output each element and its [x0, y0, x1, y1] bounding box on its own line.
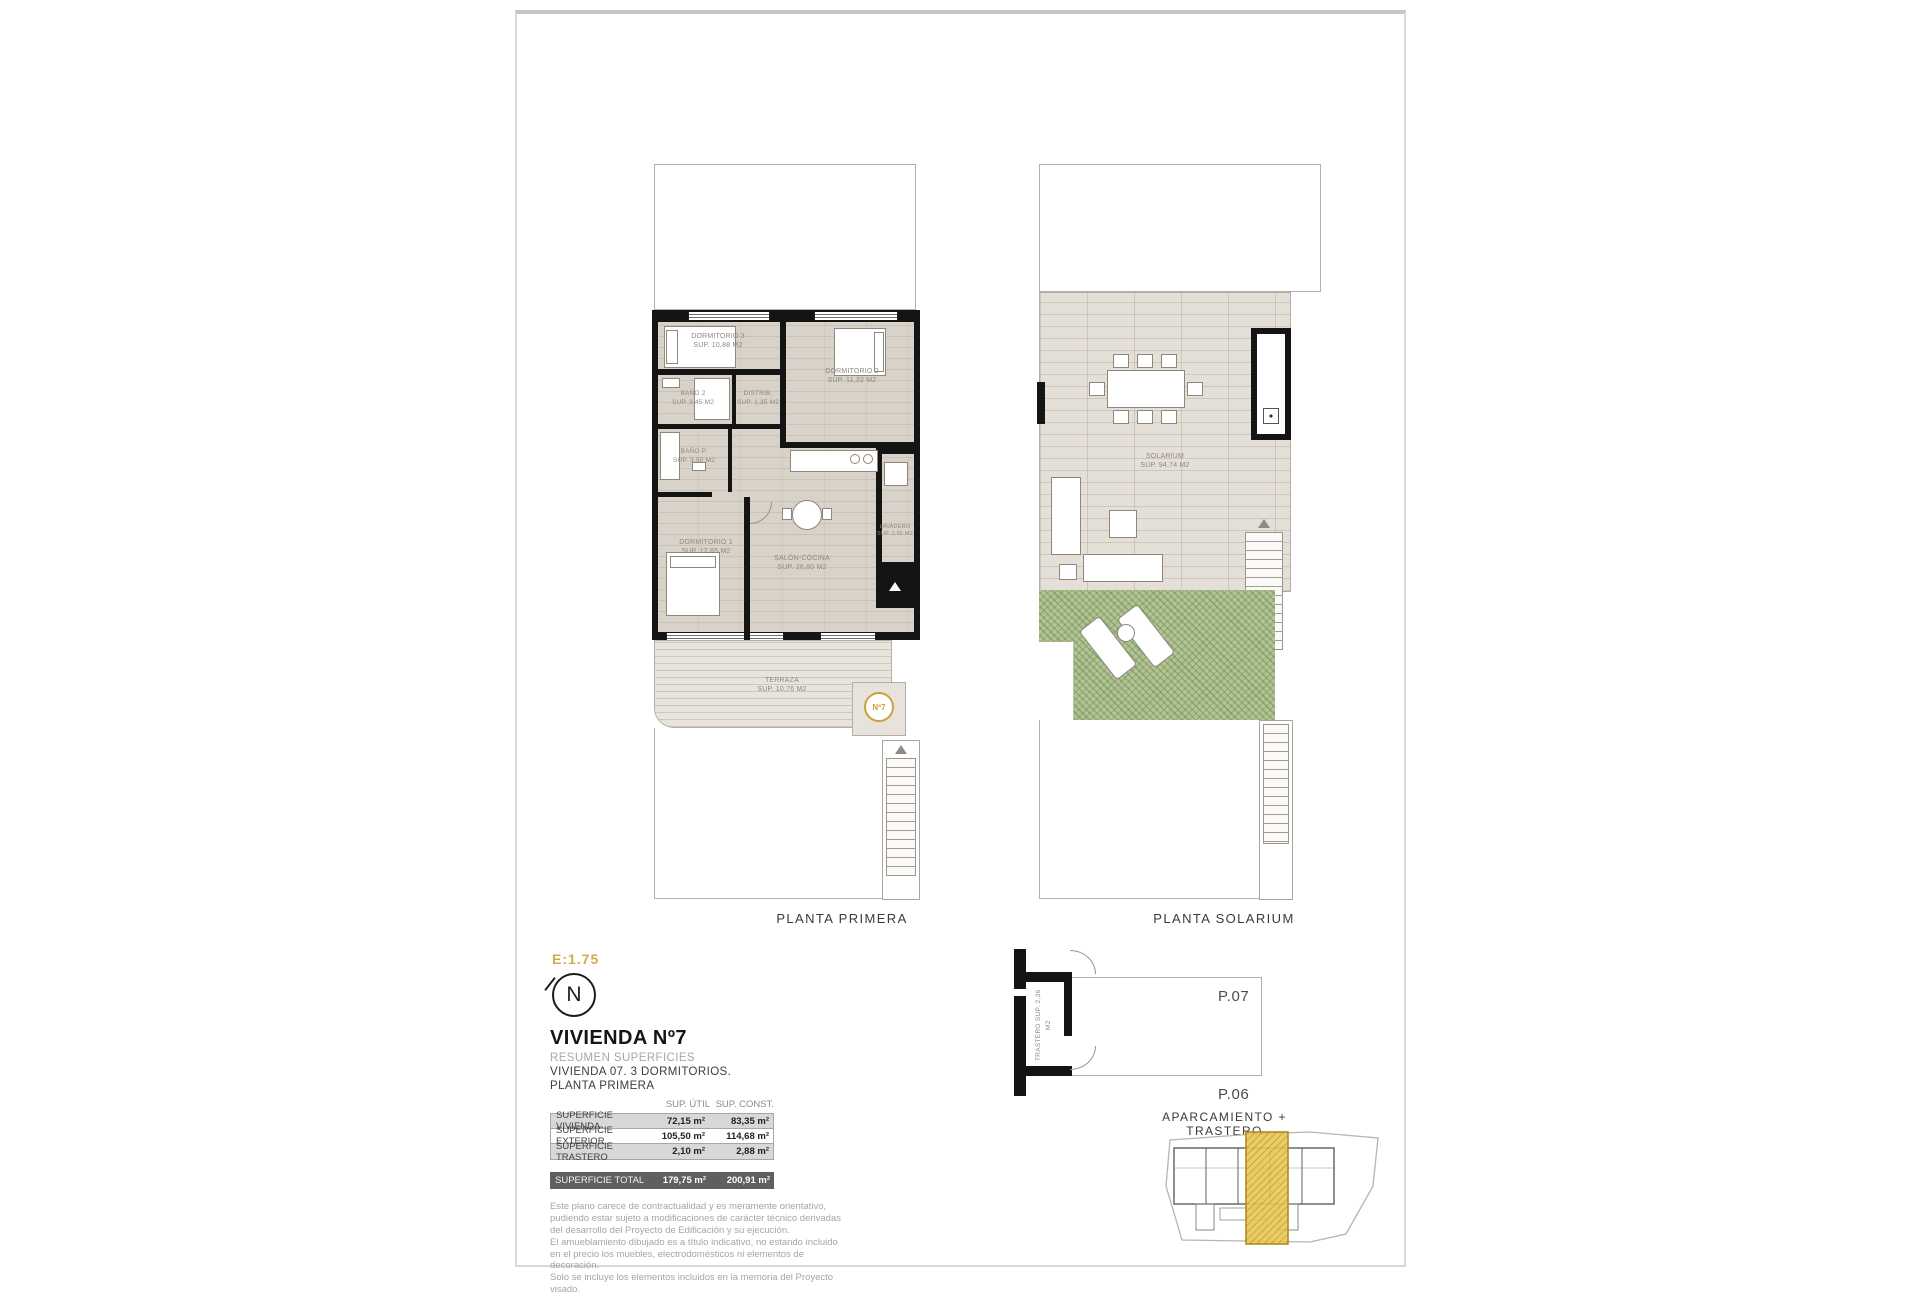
disclaimer-paragraph: Este plano carece de contractualidad y e…: [550, 1201, 842, 1237]
room-area: SUP. 26,80 M2: [760, 563, 844, 572]
sofa: [1051, 477, 1081, 555]
terrace-door-window: [666, 633, 784, 640]
wall: [1026, 972, 1072, 982]
room-area: SUP. 94,74 M2: [1123, 461, 1207, 470]
chair: [822, 508, 832, 520]
wall: [652, 424, 786, 429]
room-name: DORMITORIO 1: [670, 538, 742, 547]
chair: [1113, 410, 1129, 424]
room-label-solarium: SOLARIUM SUP. 94,74 M2: [1123, 452, 1207, 471]
unit-marker-label: Nº7: [872, 703, 885, 712]
trastero-detail-plan: TRASTERO SUP. 2,36 M2 P.07 P.06 APARCAMI…: [1012, 944, 1402, 1264]
hob-burner: [863, 454, 873, 464]
plan-caption-primera: PLANTA PRIMERA: [742, 911, 942, 926]
parcel-line: [1072, 977, 1262, 978]
north-letter: N: [566, 983, 581, 1007]
floor-plan-planta-primera: DORMITORIO 3 SUP. 10,88 M2 DORMITORIO 2 …: [652, 162, 920, 910]
round-side-table: [1117, 624, 1135, 642]
site-key-plan: [1160, 1128, 1386, 1250]
roof-outline: [1039, 164, 1321, 292]
room-name: SOLARIUM: [1123, 452, 1207, 461]
stair-arrow-icon: [1258, 519, 1270, 528]
plot-line: [654, 728, 655, 898]
parking-label-p06: P.06: [1218, 1086, 1249, 1103]
row-label: SUPERFICIE TRASTERO: [551, 1141, 647, 1163]
chair: [1161, 354, 1177, 368]
courtyard-outline: [654, 164, 916, 310]
areas-table: SUP. ÚTIL SUP. CONST. SUPERFICIE VIVIEND…: [550, 1099, 774, 1189]
window: [688, 312, 770, 320]
total-util: 179,75 m²: [648, 1175, 706, 1186]
room-label-dormitorio2: DORMITORIO 2 SUP. 11,32 M2: [814, 367, 890, 386]
title-block: E:1.75 N VIVIENDA Nº7 RESUMEN SUPERFICIE…: [550, 949, 850, 1271]
wall: [652, 369, 786, 375]
wall: [780, 322, 786, 369]
room-area: SUP. 3,50 M2: [664, 457, 724, 466]
wall: [1026, 1066, 1072, 1076]
chair: [1089, 382, 1105, 396]
highlighted-unit-band: [1246, 1132, 1288, 1244]
sheet-subtitle: RESUMEN SUPERFICIES: [550, 1052, 695, 1064]
chair: [782, 508, 792, 520]
row-util: 72,15 m²: [647, 1116, 705, 1127]
external-stairs: [1263, 724, 1289, 844]
total-label: SUPERFICIE TOTAL: [550, 1175, 648, 1186]
room-label-trastero: TRASTERO SUP. 2,36 M2: [1034, 986, 1058, 1064]
col-header-const: SUP. CONST.: [710, 1099, 774, 1110]
washbasin: [662, 378, 680, 388]
parcel-line: [1261, 977, 1262, 1076]
chair: [1161, 410, 1177, 424]
row-util: 2,10 m²: [647, 1146, 705, 1157]
room-label-dormitorio1: DORMITORIO 1 SUP. 12,85 M2: [670, 538, 742, 557]
room-label-lavadero: LAVADERO SUP. 2,65 M2: [877, 524, 913, 539]
chair: [1113, 354, 1129, 368]
room-area: SUP. 10,76 M2: [740, 685, 824, 694]
chair: [1137, 354, 1153, 368]
room-name: LAVADERO: [877, 524, 913, 531]
sofa: [1083, 554, 1163, 582]
room-name: BAÑO 2: [660, 390, 726, 399]
table-row: SUPERFICIE TRASTERO 2,10 m² 2,88 m²: [551, 1144, 773, 1159]
room-area: SUP. 2,65 M2: [877, 531, 913, 538]
room-label-dormitorio3: DORMITORIO 3 SUP. 10,88 M2: [682, 332, 754, 351]
hob-burner: [850, 454, 860, 464]
room-name: SALÓN-COCINA: [760, 554, 844, 563]
disclaimer-paragraph: Solo se incluye los elementos incluidos …: [550, 1272, 842, 1296]
row-util: 105,50 m²: [647, 1131, 705, 1142]
door-arc: [1070, 1046, 1096, 1070]
outdoor-table: [1107, 370, 1185, 408]
room-area: SUP. 12,85 M2: [670, 547, 742, 556]
room-name: TERRAZA: [740, 676, 824, 685]
dining-table: [792, 500, 822, 530]
sheet-descriptor: VIVIENDA 07. 3 DORMITORIOS.: [550, 1066, 731, 1078]
sheet-title: VIVIENDA Nº7: [550, 1027, 687, 1050]
wall: [1037, 382, 1045, 424]
fixture: [1263, 408, 1279, 424]
stair-arrow-icon: [895, 745, 907, 754]
page: { "sheet": { "scale": "E:1.75", "north":…: [0, 0, 1920, 1280]
room-area: SUP. 1,35 M2: [736, 399, 780, 408]
room-label-distribuidor: DISTRIB. SUP. 1,35 M2: [736, 390, 780, 408]
ramp: [1196, 1204, 1214, 1230]
room-name: TRASTERO: [1035, 1023, 1042, 1061]
areas-table-body: SUPERFICIE VIVIENDA 72,15 m² 83,35 m² SU…: [550, 1113, 774, 1160]
plot-line: [1039, 720, 1040, 898]
window: [814, 312, 898, 320]
room-label-terraza: TERRAZA SUP. 10,76 M2: [740, 676, 824, 695]
wall: [652, 492, 712, 497]
room-name: DORMITORIO 3: [682, 332, 754, 341]
table-total-row: SUPERFICIE TOTAL 179,75 m² 200,91 m²: [550, 1172, 774, 1189]
parcel-line: [1072, 1075, 1262, 1076]
chair: [1137, 410, 1153, 424]
col-header-util: SUP. ÚTIL: [652, 1099, 710, 1110]
plan-caption-solarium: PLANTA SOLARIUM: [1124, 911, 1324, 926]
drawing-sheet: DORMITORIO 3 SUP. 10,88 M2 DORMITORIO 2 …: [515, 10, 1406, 1267]
disclaimer: Este plano carece de contractualidad y e…: [550, 1201, 842, 1296]
row-const: 83,35 m²: [705, 1116, 773, 1127]
room-label-bano2: BAÑO 2 SUP. 3,45 M2: [660, 390, 726, 408]
external-stairs: [886, 758, 916, 876]
floor-plan-planta-solarium: SOLARIUM SUP. 94,74 M2: [1037, 162, 1324, 910]
row-const: 2,88 m²: [705, 1146, 773, 1157]
bed-pillow: [874, 332, 884, 372]
unit-marker: Nº7: [864, 692, 894, 722]
wall: [1014, 949, 1026, 989]
wall: [728, 429, 732, 492]
door-arc: [1070, 950, 1096, 974]
disclaimer-paragraph: El amueblamiento dibujado es a título in…: [550, 1237, 842, 1273]
room-name: DISTRIB.: [736, 390, 780, 399]
room-label-salon: SALÓN-COCINA SUP. 26,80 M2: [760, 554, 844, 573]
room-area: SUP. 11,32 M2: [814, 376, 890, 385]
window: [820, 633, 876, 640]
total-const: 200,91 m²: [706, 1175, 774, 1186]
bed-pillow: [666, 330, 678, 364]
coffee-table: [1109, 510, 1137, 538]
side-table: [1059, 564, 1077, 580]
room-area: SUP. 3,45 M2: [660, 399, 726, 408]
sheet-floor: PLANTA PRIMERA: [550, 1080, 654, 1092]
row-const: 114,68 m²: [705, 1131, 773, 1142]
parking-label-p07: P.07: [1218, 988, 1249, 1005]
room-name: DORMITORIO 2: [814, 367, 890, 376]
wall: [914, 322, 920, 640]
bed-pillow: [670, 556, 716, 568]
room-label-banop: BAÑO P. SUP. 3,50 M2: [664, 448, 724, 466]
plot-line: [654, 898, 884, 899]
plot-line: [1039, 898, 1259, 899]
washing-machine: [884, 462, 908, 486]
north-compass-icon: N: [552, 973, 596, 1017]
wall: [780, 369, 786, 448]
room-area: SUP. 10,88 M2: [682, 341, 754, 350]
stair-arrow-icon: [889, 582, 901, 591]
wall: [1064, 982, 1072, 1036]
wall: [1014, 996, 1026, 1096]
scale-label: E:1.75: [552, 951, 599, 967]
room-name: BAÑO P.: [664, 448, 724, 457]
chair: [1187, 382, 1203, 396]
